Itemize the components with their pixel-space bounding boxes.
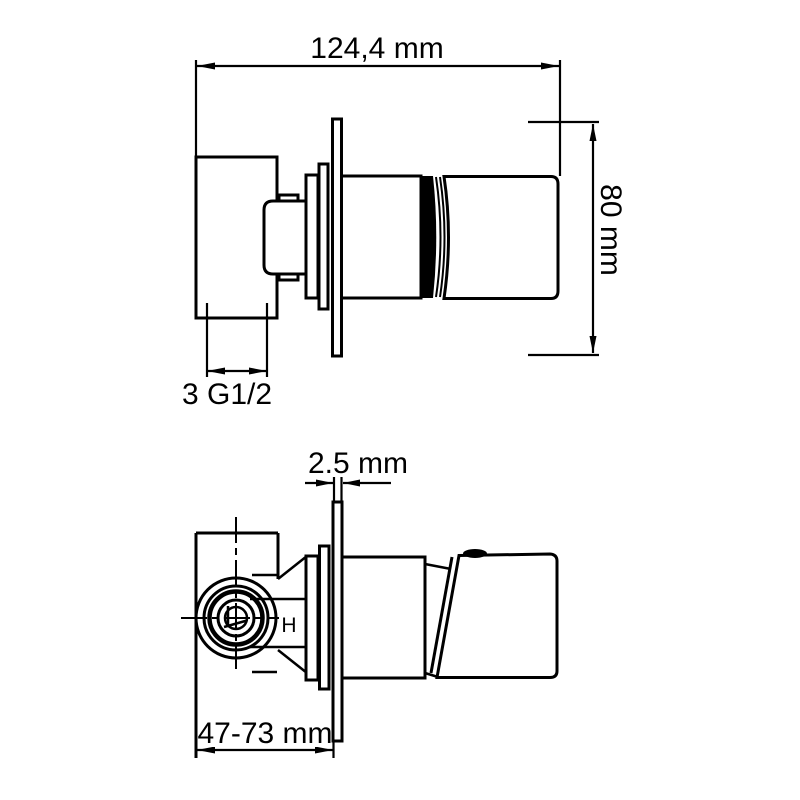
trim-ring-inner-plan <box>306 556 318 680</box>
arrowhead-right <box>316 480 333 487</box>
mixer-dimension-drawing: 124,4 mm 80 mm <box>0 0 800 800</box>
handle-lever-tip <box>463 549 487 558</box>
dimension-plate-thickness: 2.5 mm <box>305 447 408 502</box>
arrowhead-left <box>343 480 360 487</box>
technical-drawing-page: 124,4 mm 80 mm <box>0 0 800 800</box>
plan-view: 2.5 mm <box>181 447 557 758</box>
handle-side <box>444 177 558 299</box>
dimension-depth-range: 47-73 mm <box>197 717 334 758</box>
arrowhead-down <box>590 336 597 353</box>
handle-knob-plan <box>437 554 557 678</box>
trim-ring-outer-side <box>319 164 328 309</box>
depth-range-label: 47-73 mm <box>197 717 332 750</box>
escutcheon-cylinder-side <box>342 176 422 298</box>
height-dim-label: 80 mm <box>594 184 627 276</box>
hot-water-marker: H <box>281 614 296 637</box>
side-view: 124,4 mm 80 mm <box>182 32 627 411</box>
arrowhead-left <box>207 368 225 375</box>
plate-thickness-label: 2.5 mm <box>308 447 408 480</box>
cartridge-housing <box>264 201 307 274</box>
arrowhead-left <box>197 63 215 70</box>
arrowhead-right <box>249 368 267 375</box>
joint-highlight-arc-1 <box>436 177 441 297</box>
handle-joint-band <box>421 176 436 298</box>
transition-chamfer-top <box>278 556 307 579</box>
transition-chamfer-bottom <box>278 650 307 673</box>
arrowhead-right <box>541 63 559 70</box>
handle-plan <box>425 549 557 678</box>
dimension-width: 124,4 mm <box>196 32 560 176</box>
thread-dim-label: 3 G1/2 <box>182 378 272 411</box>
arrowhead-up <box>590 124 597 141</box>
width-dim-label: 124,4 mm <box>310 32 443 65</box>
trim-ring-outer-plan <box>320 546 330 689</box>
escutcheon-cylinder-plan <box>342 557 425 678</box>
trim-ring-inner-side <box>306 175 318 298</box>
joint-line-top <box>425 564 451 569</box>
